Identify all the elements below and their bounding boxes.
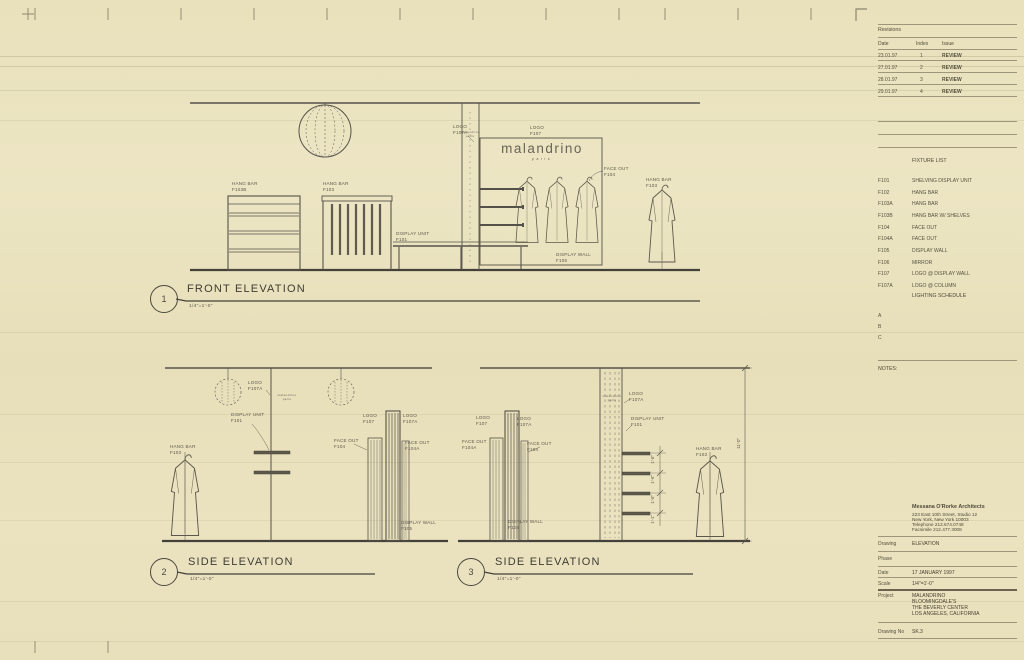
side-elevation-2-title: SIDE ELEVATION bbox=[188, 556, 294, 568]
label-display-wall: DISPLAY WALL F105 bbox=[401, 520, 436, 531]
fixture-label: LOGO bbox=[403, 413, 418, 419]
overall-height-dimension: 11'-0" bbox=[736, 438, 741, 449]
label-logo-f107a: LOGO F107A bbox=[403, 413, 418, 424]
revisions-col-date: Date bbox=[878, 41, 889, 47]
label-face-out-a: FACE OUT F104A bbox=[405, 440, 430, 451]
pendant-sphere bbox=[299, 103, 351, 157]
lighting-row-b: B bbox=[878, 324, 881, 330]
fixture-code: F103 bbox=[323, 187, 349, 193]
side-elevation-3-title: SIDE ELEVATION bbox=[495, 556, 601, 568]
separator bbox=[878, 622, 1017, 623]
fixture-code: F105 bbox=[401, 526, 436, 532]
separator bbox=[878, 121, 1017, 122]
fixture-code: F101 bbox=[231, 418, 264, 424]
label-display-unit: DISPLAY UNIT F101 bbox=[396, 231, 429, 242]
brand-name: malandrino bbox=[482, 142, 602, 156]
date-label: Date bbox=[878, 570, 889, 576]
title-underline bbox=[177, 572, 375, 574]
separator bbox=[878, 96, 1017, 97]
detail-number-3: 3 bbox=[457, 558, 485, 586]
separator bbox=[878, 551, 1017, 552]
column-logo-text: malandrino paris bbox=[600, 395, 624, 402]
fixture-code: F107A bbox=[248, 386, 263, 392]
revisions-title: Revisions bbox=[878, 27, 901, 33]
fixture-label: DISPLAY UNIT bbox=[396, 231, 429, 237]
registration-ticks bbox=[22, 8, 867, 653]
separator bbox=[878, 638, 1017, 639]
separator bbox=[878, 49, 1017, 50]
fixture-desc: FACE OUT bbox=[912, 236, 937, 242]
label-logo-column: LOGO F107A bbox=[248, 380, 263, 391]
revision-index: 1 bbox=[920, 53, 923, 59]
scale-label: Scale bbox=[878, 581, 891, 587]
fixture-code: F107 bbox=[476, 421, 490, 427]
detail-number-1: 1 bbox=[150, 285, 178, 313]
brand-sub: paris bbox=[482, 157, 602, 161]
separator bbox=[878, 577, 1017, 578]
fixture-hangbar-garments bbox=[322, 196, 392, 270]
display-unit-shelf-edges bbox=[622, 452, 650, 515]
fixture-desc: LOGO @ COLUMN bbox=[912, 283, 956, 289]
fixture-code: F106 bbox=[878, 260, 889, 266]
separator bbox=[878, 536, 1017, 537]
label-logo-column: LOGO F107A bbox=[629, 391, 644, 402]
fixture-label: HANG BAR bbox=[646, 177, 672, 183]
fixture-label: LOGO bbox=[453, 124, 468, 130]
fixture-desc: LOGO @ DISPLAY WALL bbox=[912, 271, 970, 277]
fixture-desc: MIRROR bbox=[912, 260, 932, 266]
revision-issue: REVIEW bbox=[942, 65, 962, 71]
display-unit-shelf-edges bbox=[254, 451, 290, 474]
separator bbox=[878, 147, 1017, 148]
date-value: 17 JANUARY 1997 bbox=[912, 570, 955, 576]
fixture-list-title: FIXTURE LIST bbox=[912, 158, 947, 164]
fixture-code: F104 bbox=[878, 225, 889, 231]
fixture-label: FACE OUT bbox=[462, 439, 487, 445]
label-hang-bar: HANG BAR F103 bbox=[696, 446, 722, 457]
drawing-no-value: SK.3 bbox=[912, 629, 923, 635]
fixture-label: HANG BAR bbox=[170, 444, 196, 450]
label-display-wall: DISPLAY WALL F105 bbox=[508, 519, 543, 530]
label-face-out: FACE OUT F104 bbox=[334, 438, 359, 449]
fixture-code: F107A bbox=[403, 419, 418, 425]
lighting-row-c: C bbox=[878, 335, 882, 341]
front-elevation-scale: 1/4"=1'-0" bbox=[189, 304, 213, 309]
fixture-code: F104 bbox=[604, 172, 629, 178]
fixture-label: LOGO bbox=[629, 391, 644, 397]
label-logo-f107: LOGO F107 bbox=[363, 413, 377, 424]
fixture-label: LOGO bbox=[530, 125, 544, 131]
side-elevation-2-drawing bbox=[162, 368, 448, 574]
label-face-out: FACE OUT F104 bbox=[527, 441, 552, 452]
label-logo-f107: LOGO F107 bbox=[476, 415, 490, 426]
fixture-label: FACE OUT bbox=[405, 440, 430, 446]
fixture-desc: DISPLAY WALL bbox=[912, 248, 947, 254]
front-elevation-drawing bbox=[176, 103, 700, 301]
fixture-code: F104A bbox=[878, 236, 893, 242]
drawing-value: ELEVATION bbox=[912, 541, 939, 547]
label-display-unit: DISPLAY UNIT F101 bbox=[631, 416, 664, 427]
fixture-code: F104 bbox=[527, 447, 552, 453]
fixture-label: FACE OUT bbox=[604, 166, 629, 172]
notes-label: NOTES: bbox=[878, 366, 897, 372]
garment-silhouette bbox=[696, 456, 723, 537]
label-hang-bar-f103b: HANG BAR F103B bbox=[232, 181, 258, 192]
garment-silhouette bbox=[546, 177, 568, 242]
revision-index: 2 bbox=[920, 65, 923, 71]
fixture-code: F107A bbox=[878, 283, 893, 289]
fixture-label: DISPLAY WALL bbox=[401, 520, 436, 526]
fixture-code: F107 bbox=[878, 271, 889, 277]
revision-issue: REVIEW bbox=[942, 53, 962, 59]
label-face-out: FACE OUT F104 bbox=[604, 166, 629, 177]
phase-label: Phase bbox=[878, 556, 892, 562]
title-underline bbox=[484, 572, 693, 574]
fixture-code: F104A bbox=[462, 445, 487, 451]
lighting-row-a: A bbox=[878, 313, 881, 319]
fixture-code: F105 bbox=[508, 525, 543, 531]
label-logo-wall: LOGO F107 bbox=[530, 125, 544, 136]
separator bbox=[878, 37, 1017, 38]
revision-index: 3 bbox=[920, 77, 923, 83]
fixture-code: F104A bbox=[405, 446, 430, 452]
shelf-dimension: 1'-6" bbox=[650, 475, 655, 484]
title-block-panel: Revisions Date Index Issue 23.01.97 1 RE… bbox=[876, 0, 1022, 660]
fixture-code: F107 bbox=[363, 419, 377, 425]
separator bbox=[878, 84, 1017, 85]
shelf-dimension: 1'-1" bbox=[650, 515, 655, 524]
fixture-code: F105 bbox=[878, 248, 889, 254]
separator bbox=[878, 60, 1017, 61]
fixture-label: DISPLAY UNIT bbox=[631, 416, 664, 422]
label-face-out-a: FACE OUT F104A bbox=[462, 439, 487, 450]
fixture-label: FACE OUT bbox=[527, 441, 552, 447]
fixture-label: LOGO bbox=[248, 380, 263, 386]
brand-sub: paris bbox=[274, 398, 300, 402]
label-display-unit: DISPLAY UNIT F101 bbox=[231, 412, 264, 423]
fixture-code: F103B bbox=[878, 213, 893, 219]
fixture-desc: FACE OUT bbox=[912, 225, 937, 231]
fixture-label: DISPLAY WALL bbox=[508, 519, 543, 525]
shelf-dimension: 1'-6" bbox=[650, 495, 655, 504]
revisions-col-issue: Issue bbox=[942, 41, 954, 47]
garment-silhouette bbox=[516, 177, 538, 242]
fixture-code: F102 bbox=[878, 190, 889, 196]
separator bbox=[878, 360, 1017, 361]
overall-dimension-line bbox=[738, 365, 752, 544]
fixture-label: DISPLAY UNIT bbox=[231, 412, 264, 418]
fixture-code: F104 bbox=[334, 444, 359, 450]
label-hang-bar: HANG BAR F103 bbox=[170, 444, 196, 455]
side-elevation-3-scale: 1/4"=1'-0" bbox=[497, 577, 521, 582]
title-underline bbox=[176, 299, 700, 301]
revision-date: 28.01.97 bbox=[878, 77, 897, 83]
label-display-wall: DISPLAY WALL F105 bbox=[556, 252, 591, 263]
revisions-col-index: Index bbox=[916, 41, 928, 47]
detail-number-2: 2 bbox=[150, 558, 178, 586]
column-logo-text: malandrino paris bbox=[274, 394, 300, 401]
fixture-label: LOGO bbox=[476, 415, 490, 421]
label-hang-bar-right: HANG BAR F103 bbox=[646, 177, 672, 188]
separator bbox=[878, 566, 1017, 567]
detail-number: 2 bbox=[161, 567, 166, 577]
side-elevation-2-scale: 1/4"=1'-0" bbox=[190, 577, 214, 582]
fixture-code: F101 bbox=[631, 422, 664, 428]
architect-name: Messana O'Rorke Architects bbox=[912, 504, 985, 510]
label-logo-f107a: LOGO F107A bbox=[517, 416, 532, 427]
fixture-label: HANG BAR bbox=[232, 181, 258, 187]
fixture-desc: SHELVING DISPLAY UNIT bbox=[912, 178, 972, 184]
drawing-no-label: Drawing No bbox=[878, 629, 904, 635]
revision-issue: REVIEW bbox=[942, 77, 962, 83]
fixture-code: F103 bbox=[170, 450, 196, 456]
drawing-sheet: HANG BAR F103B HANG BAR F103 DISPLAY UNI… bbox=[0, 0, 1024, 660]
fixture-code: F101 bbox=[396, 237, 429, 243]
garment-silhouette bbox=[171, 455, 198, 536]
fixture-label: LOGO bbox=[363, 413, 377, 419]
garment-silhouette bbox=[649, 185, 675, 262]
scale-value: 1/4"=1'-0" bbox=[912, 581, 934, 587]
fixture-code: F103 bbox=[646, 183, 672, 189]
fixture-label: FACE OUT bbox=[334, 438, 359, 444]
fixture-desc: HANG BAR W/ SHELVES bbox=[912, 213, 970, 219]
fixture-code: F107A bbox=[629, 397, 644, 403]
fixture-code: F103B bbox=[232, 187, 258, 193]
fixture-code: F103 bbox=[696, 452, 722, 458]
project-line: LOS ANGELES, CALIFORNIA bbox=[912, 611, 980, 617]
lighting-schedule-title: LIGHTING SCHEDULE bbox=[912, 293, 966, 299]
fixture-label: HANG BAR bbox=[323, 181, 349, 187]
separator bbox=[878, 72, 1017, 73]
drawing-label: Drawing bbox=[878, 541, 896, 547]
shelf-dimension: 1'-6" bbox=[650, 455, 655, 464]
brand-sub: paris bbox=[461, 135, 479, 139]
fixture-label: LOGO bbox=[517, 416, 532, 422]
revision-index: 4 bbox=[920, 89, 923, 95]
fixture-label: HANG BAR bbox=[696, 446, 722, 452]
garment-silhouette bbox=[576, 177, 598, 242]
fixture-code: F107 bbox=[530, 131, 544, 137]
column-logo-text: malandrino paris bbox=[461, 131, 479, 138]
fixture-desc: HANG BAR bbox=[912, 201, 938, 207]
fixture-hangbar-shelves bbox=[228, 196, 300, 270]
revision-date: 29.01.97 bbox=[878, 89, 897, 95]
fixture-code: F105 bbox=[556, 258, 591, 264]
fixture-code: F101 bbox=[878, 178, 889, 184]
malandrino-wall-logo: malandrino paris bbox=[482, 142, 602, 161]
fixture-desc: HANG BAR bbox=[912, 190, 938, 196]
architect-fax: Facsimile 212.477.3008 bbox=[912, 527, 962, 532]
fixture-code: F103A bbox=[878, 201, 893, 207]
revision-date: 27.01.97 bbox=[878, 65, 897, 71]
revision-issue: REVIEW bbox=[942, 89, 962, 95]
front-elevation-title: FRONT ELEVATION bbox=[187, 283, 306, 295]
separator bbox=[878, 24, 1017, 25]
detail-number: 1 bbox=[161, 294, 166, 304]
separator bbox=[878, 134, 1017, 135]
separator bbox=[878, 589, 1017, 591]
label-hang-bar-f103: HANG BAR F103 bbox=[323, 181, 349, 192]
detail-number: 3 bbox=[468, 567, 473, 577]
fixture-code: F107A bbox=[517, 422, 532, 428]
brand-sub: paris bbox=[600, 399, 624, 403]
project-label: Project bbox=[878, 593, 894, 599]
fixture-label: DISPLAY WALL bbox=[556, 252, 591, 258]
revision-date: 23.01.97 bbox=[878, 53, 897, 59]
